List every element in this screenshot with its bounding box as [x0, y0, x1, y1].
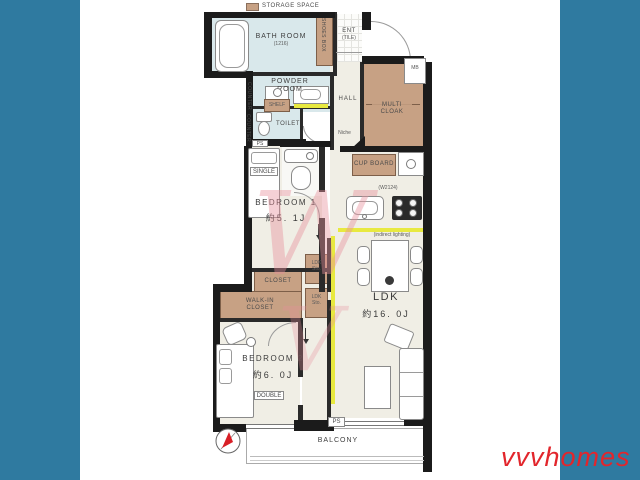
bathtub-inner: [219, 24, 245, 68]
niche-label: Niche: [334, 131, 355, 137]
closet-label: CLOSET: [254, 278, 302, 285]
ldk-storage-1-label: LDK Sto.: [305, 261, 328, 272]
ldk-storage-2-label: LDK Sto.: [305, 295, 328, 306]
sofa: [399, 348, 424, 420]
balcony: [246, 428, 424, 464]
wall-segment: [204, 12, 335, 18]
indirect-lighting-strip-vertical: [331, 236, 335, 404]
stove-burner-icon: [395, 209, 403, 217]
wall-segment: [333, 12, 337, 76]
wall-segment: [423, 62, 432, 472]
double-bed-pillow: [219, 349, 232, 365]
entrance-door-arc: [371, 21, 411, 61]
refrigerator-icon: [406, 159, 416, 169]
balcony-rail-line: [250, 460, 424, 461]
washing-machine-drum-icon: [273, 88, 282, 97]
direction-arrow-icon: [303, 328, 309, 344]
dining-chair: [357, 268, 370, 286]
right-frame: [560, 0, 640, 480]
walk-in-closet-label: WALK-IN CLOSET: [230, 298, 290, 311]
shoes-box-label: SHOES BOX: [320, 18, 326, 64]
entrance-label: ENT: [337, 28, 361, 35]
niche-triangle: [352, 136, 365, 148]
ldk-size-label: 約16. 0J: [352, 307, 420, 320]
toilet-bowl: [258, 121, 270, 136]
compass-icon: [214, 427, 242, 455]
counter-label-lower: COUNTER: [245, 114, 251, 142]
entrance-floor-label: (TILE): [337, 36, 361, 42]
bathroom-label: BATH ROOM: [248, 33, 314, 41]
legend-swatch: [246, 3, 259, 11]
left-frame: [0, 0, 80, 480]
coffee-table: [364, 366, 391, 409]
vanity-basin: [300, 89, 321, 100]
indirect-lighting-label: (indirect lighting): [360, 233, 424, 239]
entrance-step-line: [336, 52, 362, 53]
wall-segment: [327, 300, 331, 420]
wall-segment: [362, 12, 371, 30]
double-bed-label: DOUBLE: [254, 391, 284, 400]
bedroom1-size-label: 約5. 1J: [250, 211, 322, 224]
stove-burner-icon: [395, 199, 403, 207]
counter-label-upper: COUNTER: [246, 82, 252, 110]
bedroom1-label: BEDROOM 1: [250, 198, 322, 207]
side-table: [246, 337, 256, 347]
balcony-rail-line: [250, 456, 424, 457]
wc-bowl: [291, 166, 311, 190]
wall-segment: [204, 12, 212, 78]
toilet-label: TOILET: [274, 121, 302, 128]
mb-label: MB: [404, 66, 426, 72]
floor-plan-page: STORAGE SPACE BATH ROOM (1216) SHOES BOX…: [0, 0, 640, 480]
multi-cloak-label: MULTI CLOAK: [372, 102, 412, 115]
stove-burner-icon: [409, 199, 417, 207]
kitchen-stove: [392, 196, 422, 220]
brand-logo: vvvhomes: [501, 442, 631, 473]
legend-label: STORAGE SPACE: [262, 3, 332, 10]
sofa-seam: [400, 372, 423, 373]
window-strip: [246, 424, 294, 429]
kitchen-faucet-icon: [362, 214, 367, 219]
vanity-light-strip: [294, 104, 328, 108]
wall-segment: [280, 141, 331, 147]
wall-segment: [319, 146, 325, 192]
wall-segment: [215, 318, 303, 322]
bedroom2-label: BEDROOM 2: [234, 354, 312, 363]
bathroom-size-label: (1216): [248, 42, 314, 48]
ps-box-bottom: PS: [328, 417, 345, 427]
balcony-label: BALCONY: [300, 437, 376, 445]
dining-chair: [410, 246, 423, 264]
single-bed-pillow: [251, 152, 277, 164]
kitchen-width-label: (W2124): [368, 186, 408, 192]
sofa-seam: [400, 396, 423, 397]
kitchen-sink: [352, 201, 378, 215]
single-bed-label: SINGLE: [250, 167, 278, 176]
stove-burner-icon: [409, 209, 417, 217]
bedroom2-size-label: 約6. 0J: [234, 368, 312, 381]
shelf-label: SHELF: [264, 103, 290, 109]
dining-chair: [410, 268, 423, 286]
cup-board-label: CUP BOARD: [352, 161, 396, 168]
hall-label: HALL: [334, 96, 362, 103]
ps-box-top: PS: [252, 140, 268, 147]
wash-counter-basin-icon: [306, 152, 314, 160]
ldk-label: LDK: [356, 291, 416, 303]
dining-table-pedestal: [385, 276, 394, 285]
direction-arrow-icon: [316, 224, 322, 240]
double-bed-pillow: [219, 368, 232, 384]
dining-chair: [357, 246, 370, 264]
